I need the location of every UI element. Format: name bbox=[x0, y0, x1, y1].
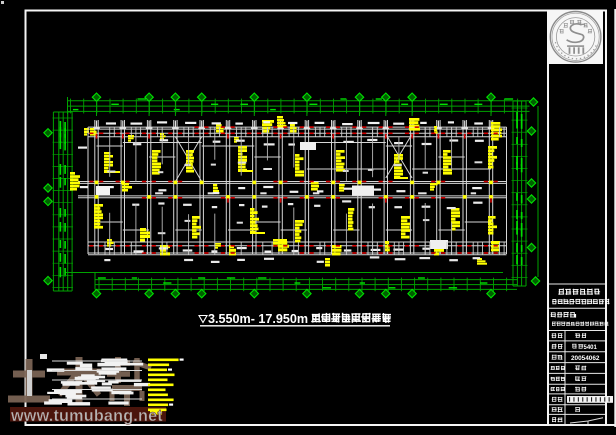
svg-text:5401: 5401 bbox=[584, 345, 598, 351]
svg-text:www.tumubang.net: www.tumubang.net bbox=[10, 407, 163, 425]
svg-text:3.550m- 17.950m: 3.550m- 17.950m bbox=[208, 312, 308, 326]
svg-text:20054062: 20054062 bbox=[571, 355, 600, 362]
